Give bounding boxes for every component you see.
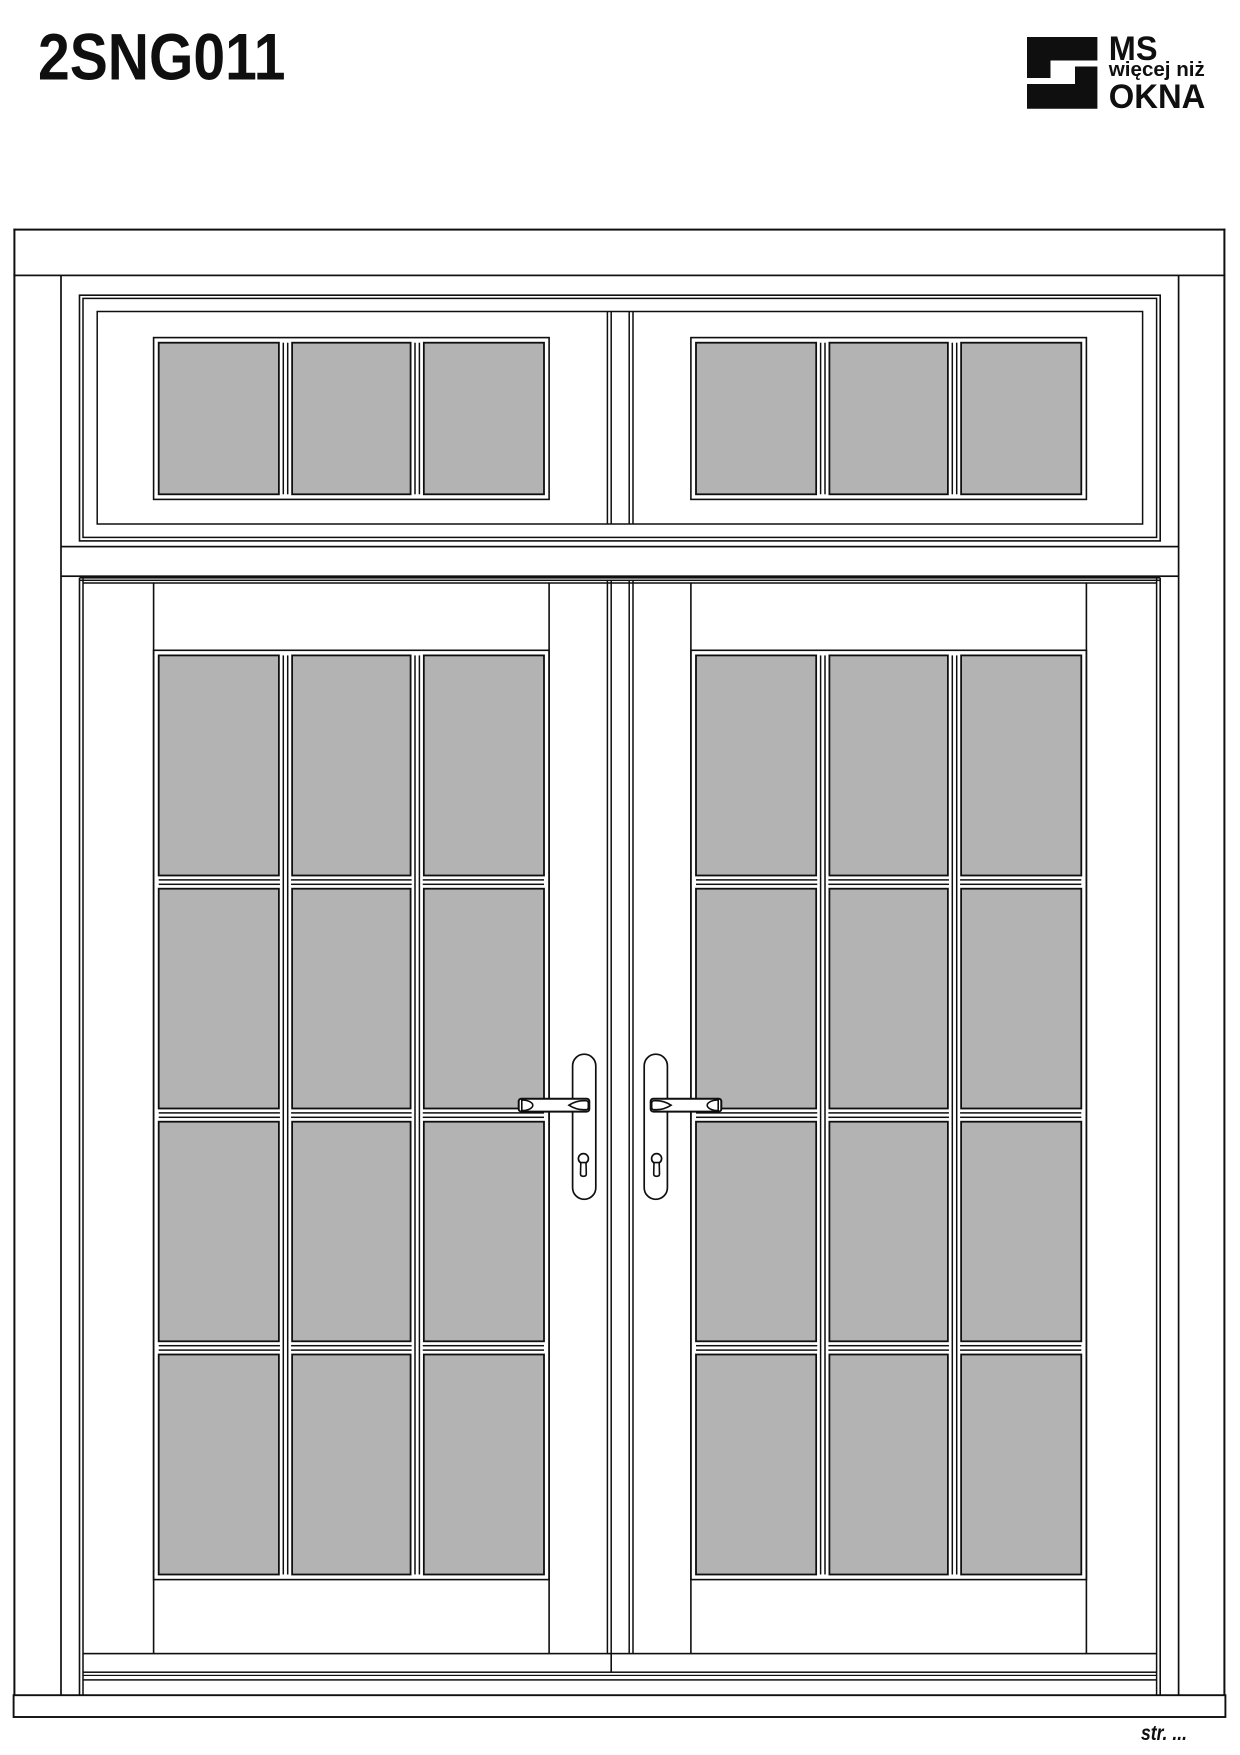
svg-text:str. ...: str. ... [1141,1722,1187,1745]
svg-text:2SNG011: 2SNG011 [38,20,286,94]
svg-text:OKNA: OKNA [1109,78,1206,116]
